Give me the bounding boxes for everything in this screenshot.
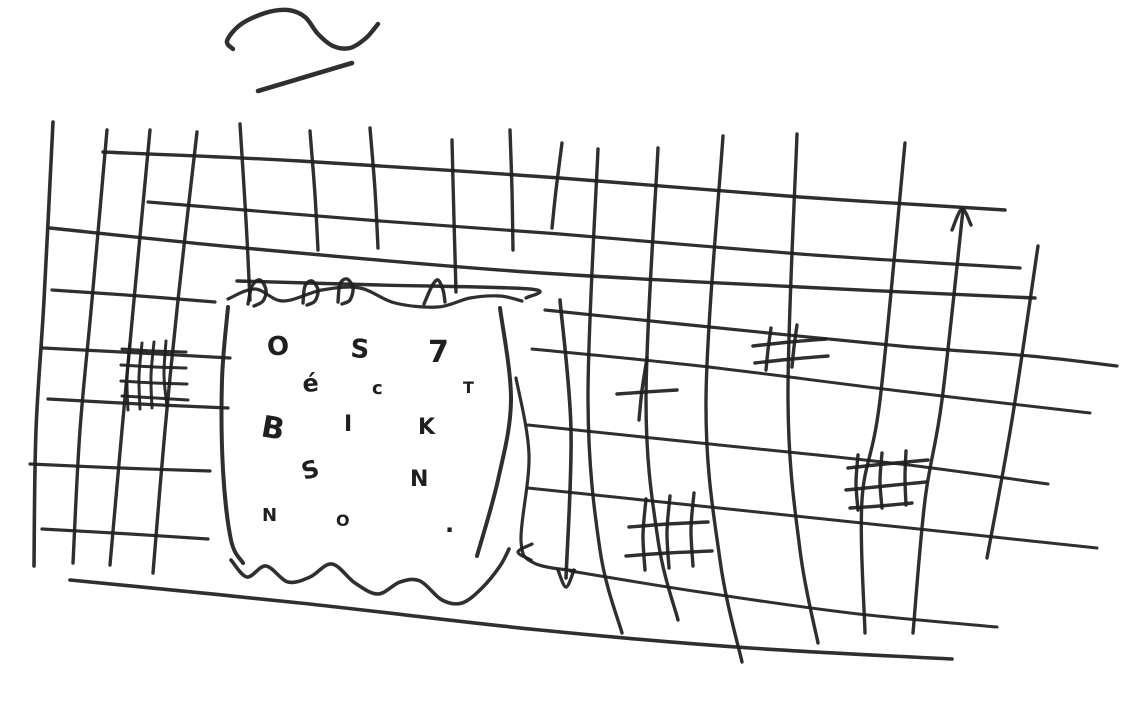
ink-stroke	[48, 399, 228, 408]
short-dash	[258, 63, 352, 91]
ink-stroke	[240, 124, 250, 300]
top-squiggle-icon	[227, 10, 378, 91]
ink-stroke	[310, 131, 318, 250]
panel-letter: .	[445, 510, 454, 538]
panel-top-wave	[228, 287, 522, 307]
ink-stroke	[691, 493, 694, 566]
ink-stroke	[643, 499, 646, 570]
ink-stroke	[370, 128, 378, 248]
panel-left-edge	[222, 307, 243, 563]
panel-bottom-wave	[231, 549, 509, 604]
ink-stroke	[34, 122, 53, 566]
ink-stroke	[560, 300, 571, 578]
panel-letter: K	[418, 415, 436, 440]
ink-stroke	[856, 455, 858, 510]
ink-stroke	[122, 396, 188, 400]
panel-letter: 7	[428, 335, 449, 370]
ink-stroke	[148, 202, 1020, 268]
panel-letter: O	[266, 331, 291, 363]
ink-stroke	[73, 130, 107, 563]
hatch-patches	[121, 325, 928, 570]
ink-stroke	[121, 365, 186, 368]
ink-stroke	[552, 143, 562, 228]
ink-stroke	[846, 482, 926, 490]
panel-letter: N	[410, 467, 428, 492]
ink-stroke	[50, 228, 1035, 298]
ink-stroke	[706, 136, 742, 662]
ink-stroke	[880, 453, 882, 508]
ink-stroke	[424, 280, 445, 304]
panel-letter: N	[262, 505, 277, 526]
arrow-marks	[518, 209, 971, 587]
panel-letter: B	[259, 409, 288, 447]
ink-stroke	[788, 134, 818, 643]
ink-stroke	[570, 571, 997, 627]
ink-stroke	[121, 381, 187, 384]
tilde-squiggle	[227, 10, 378, 49]
ink-stroke	[42, 529, 208, 539]
panel-letter: c	[372, 378, 383, 399]
panel-letters: OS7écTBIKSNNO.	[259, 331, 474, 538]
sketch-canvas: OS7écTBIKSNNO.	[0, 0, 1140, 706]
panel-letter: S	[298, 454, 322, 486]
ink-stroke	[913, 210, 963, 633]
ink-stroke	[452, 140, 456, 292]
ink-stroke	[70, 580, 952, 659]
ink-stroke	[646, 148, 678, 620]
panel-letter: é	[301, 369, 319, 398]
ink-stroke	[588, 149, 622, 633]
ink-stroke	[528, 488, 1097, 548]
ink-stroke	[667, 496, 670, 568]
sketch-page: OS7écTBIKSNNO.	[0, 0, 1140, 706]
ink-stroke	[792, 325, 797, 367]
panel-right-edge	[477, 308, 511, 556]
panel-letter: O	[336, 511, 350, 530]
panel-letter: T	[463, 378, 474, 397]
panel-letter: I	[344, 412, 352, 437]
plus-mark	[617, 390, 677, 394]
ink-stroke	[905, 451, 906, 505]
panel-letter: S	[350, 334, 371, 365]
